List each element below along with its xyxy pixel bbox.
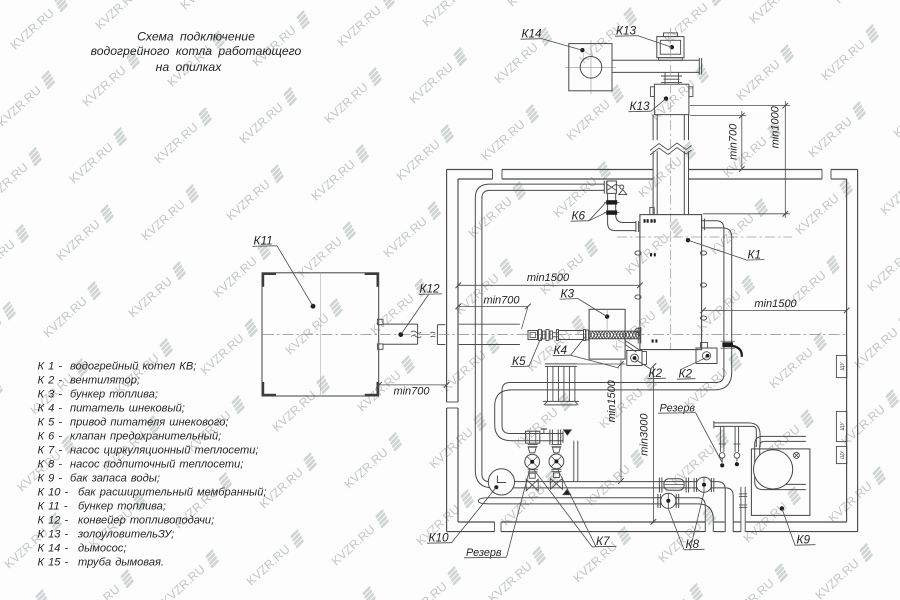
svg-text:min1000: min1000 [769, 105, 781, 148]
svg-text:К1: К1 [748, 247, 762, 261]
svg-text:насос циркуляционный теплосети: насос циркуляционный теплосети; [70, 445, 258, 457]
svg-text:К9: К9 [797, 533, 811, 547]
svg-text:К 9 -: К 9 - [38, 473, 63, 485]
svg-text:К 10 -: К 10 - [38, 487, 69, 499]
svg-text:К 14 -: К 14 - [38, 543, 69, 555]
svg-text:привод питателя шнекового;: привод питателя шнекового; [70, 417, 228, 429]
svg-text:min1500: min1500 [606, 379, 618, 422]
svg-text:Схема подключение: Схема подключение [137, 30, 255, 44]
svg-text:К4: К4 [554, 343, 568, 357]
svg-text:min3000: min3000 [639, 413, 651, 456]
svg-text:водогрейный котел КВ;: водогрейный котел КВ; [70, 361, 196, 373]
svg-text:К 7 -: К 7 - [38, 445, 63, 457]
svg-text:насос подпиточный теплосети;: насос подпиточный теплосети; [70, 459, 243, 471]
svg-text:золоуловительЗУ;: золоуловительЗУ; [77, 529, 174, 541]
svg-text:бункер топлива;: бункер топлива; [70, 389, 158, 401]
svg-text:вентилятор;: вентилятор; [70, 375, 140, 387]
svg-text:К5: К5 [512, 354, 526, 368]
svg-text:бак расширительный мембранный;: бак расширительный мембранный; [78, 487, 266, 499]
svg-text:К 3 -: К 3 - [38, 389, 63, 401]
svg-text:дымосос;: дымосос; [78, 543, 126, 555]
svg-text:К12: К12 [420, 282, 441, 296]
svg-text:К3: К3 [561, 286, 575, 300]
svg-text:ЩУ: ЩУ [840, 422, 846, 431]
svg-text:min700: min700 [393, 386, 430, 398]
svg-text:К 8 -: К 8 - [38, 459, 63, 471]
svg-text:К 12 -: К 12 - [38, 515, 69, 527]
svg-text:К 5 -: К 5 - [38, 417, 63, 429]
svg-text:конвейер топливоподачи;: конвейер топливоподачи; [78, 515, 214, 527]
svg-text:К6: К6 [572, 209, 586, 223]
svg-text:min700: min700 [727, 123, 739, 160]
svg-text:бак запаса воды;: бак запаса воды; [70, 473, 160, 485]
svg-text:К10: К10 [429, 531, 450, 545]
svg-text:труба дымовая.: труба дымовая. [78, 557, 164, 569]
svg-text:водогрейного котла работающего: водогрейного котла работающего [91, 44, 302, 58]
svg-text:К 15 -: К 15 - [38, 557, 69, 569]
svg-text:К 11 -: К 11 - [38, 501, 68, 513]
svg-text:на опилках: на опилках [156, 60, 223, 74]
svg-text:питатель шнековый;: питатель шнековый; [70, 403, 185, 415]
svg-text:К 13 -: К 13 - [38, 529, 69, 541]
svg-text:клапан предохранительный;: клапан предохранительный; [70, 431, 221, 443]
svg-text:К 4 -: К 4 - [38, 403, 63, 415]
svg-text:ЩУ: ЩУ [840, 450, 846, 459]
svg-text:К2: К2 [649, 366, 663, 380]
svg-text:К7: К7 [596, 534, 610, 548]
svg-text:min700: min700 [483, 295, 520, 307]
svg-text:К 1 -: К 1 - [38, 361, 63, 373]
svg-text:бункер топлива;: бункер топлива; [78, 501, 166, 513]
svg-text:ЩУ: ЩУ [840, 362, 846, 371]
svg-text:К 6 -: К 6 - [38, 431, 63, 443]
svg-text:min1500: min1500 [754, 298, 797, 310]
svg-text:К11: К11 [254, 234, 273, 248]
svg-text:К 2 -: К 2 - [38, 375, 63, 387]
svg-text:min1500: min1500 [527, 272, 570, 284]
svg-text:К2: К2 [679, 367, 693, 381]
